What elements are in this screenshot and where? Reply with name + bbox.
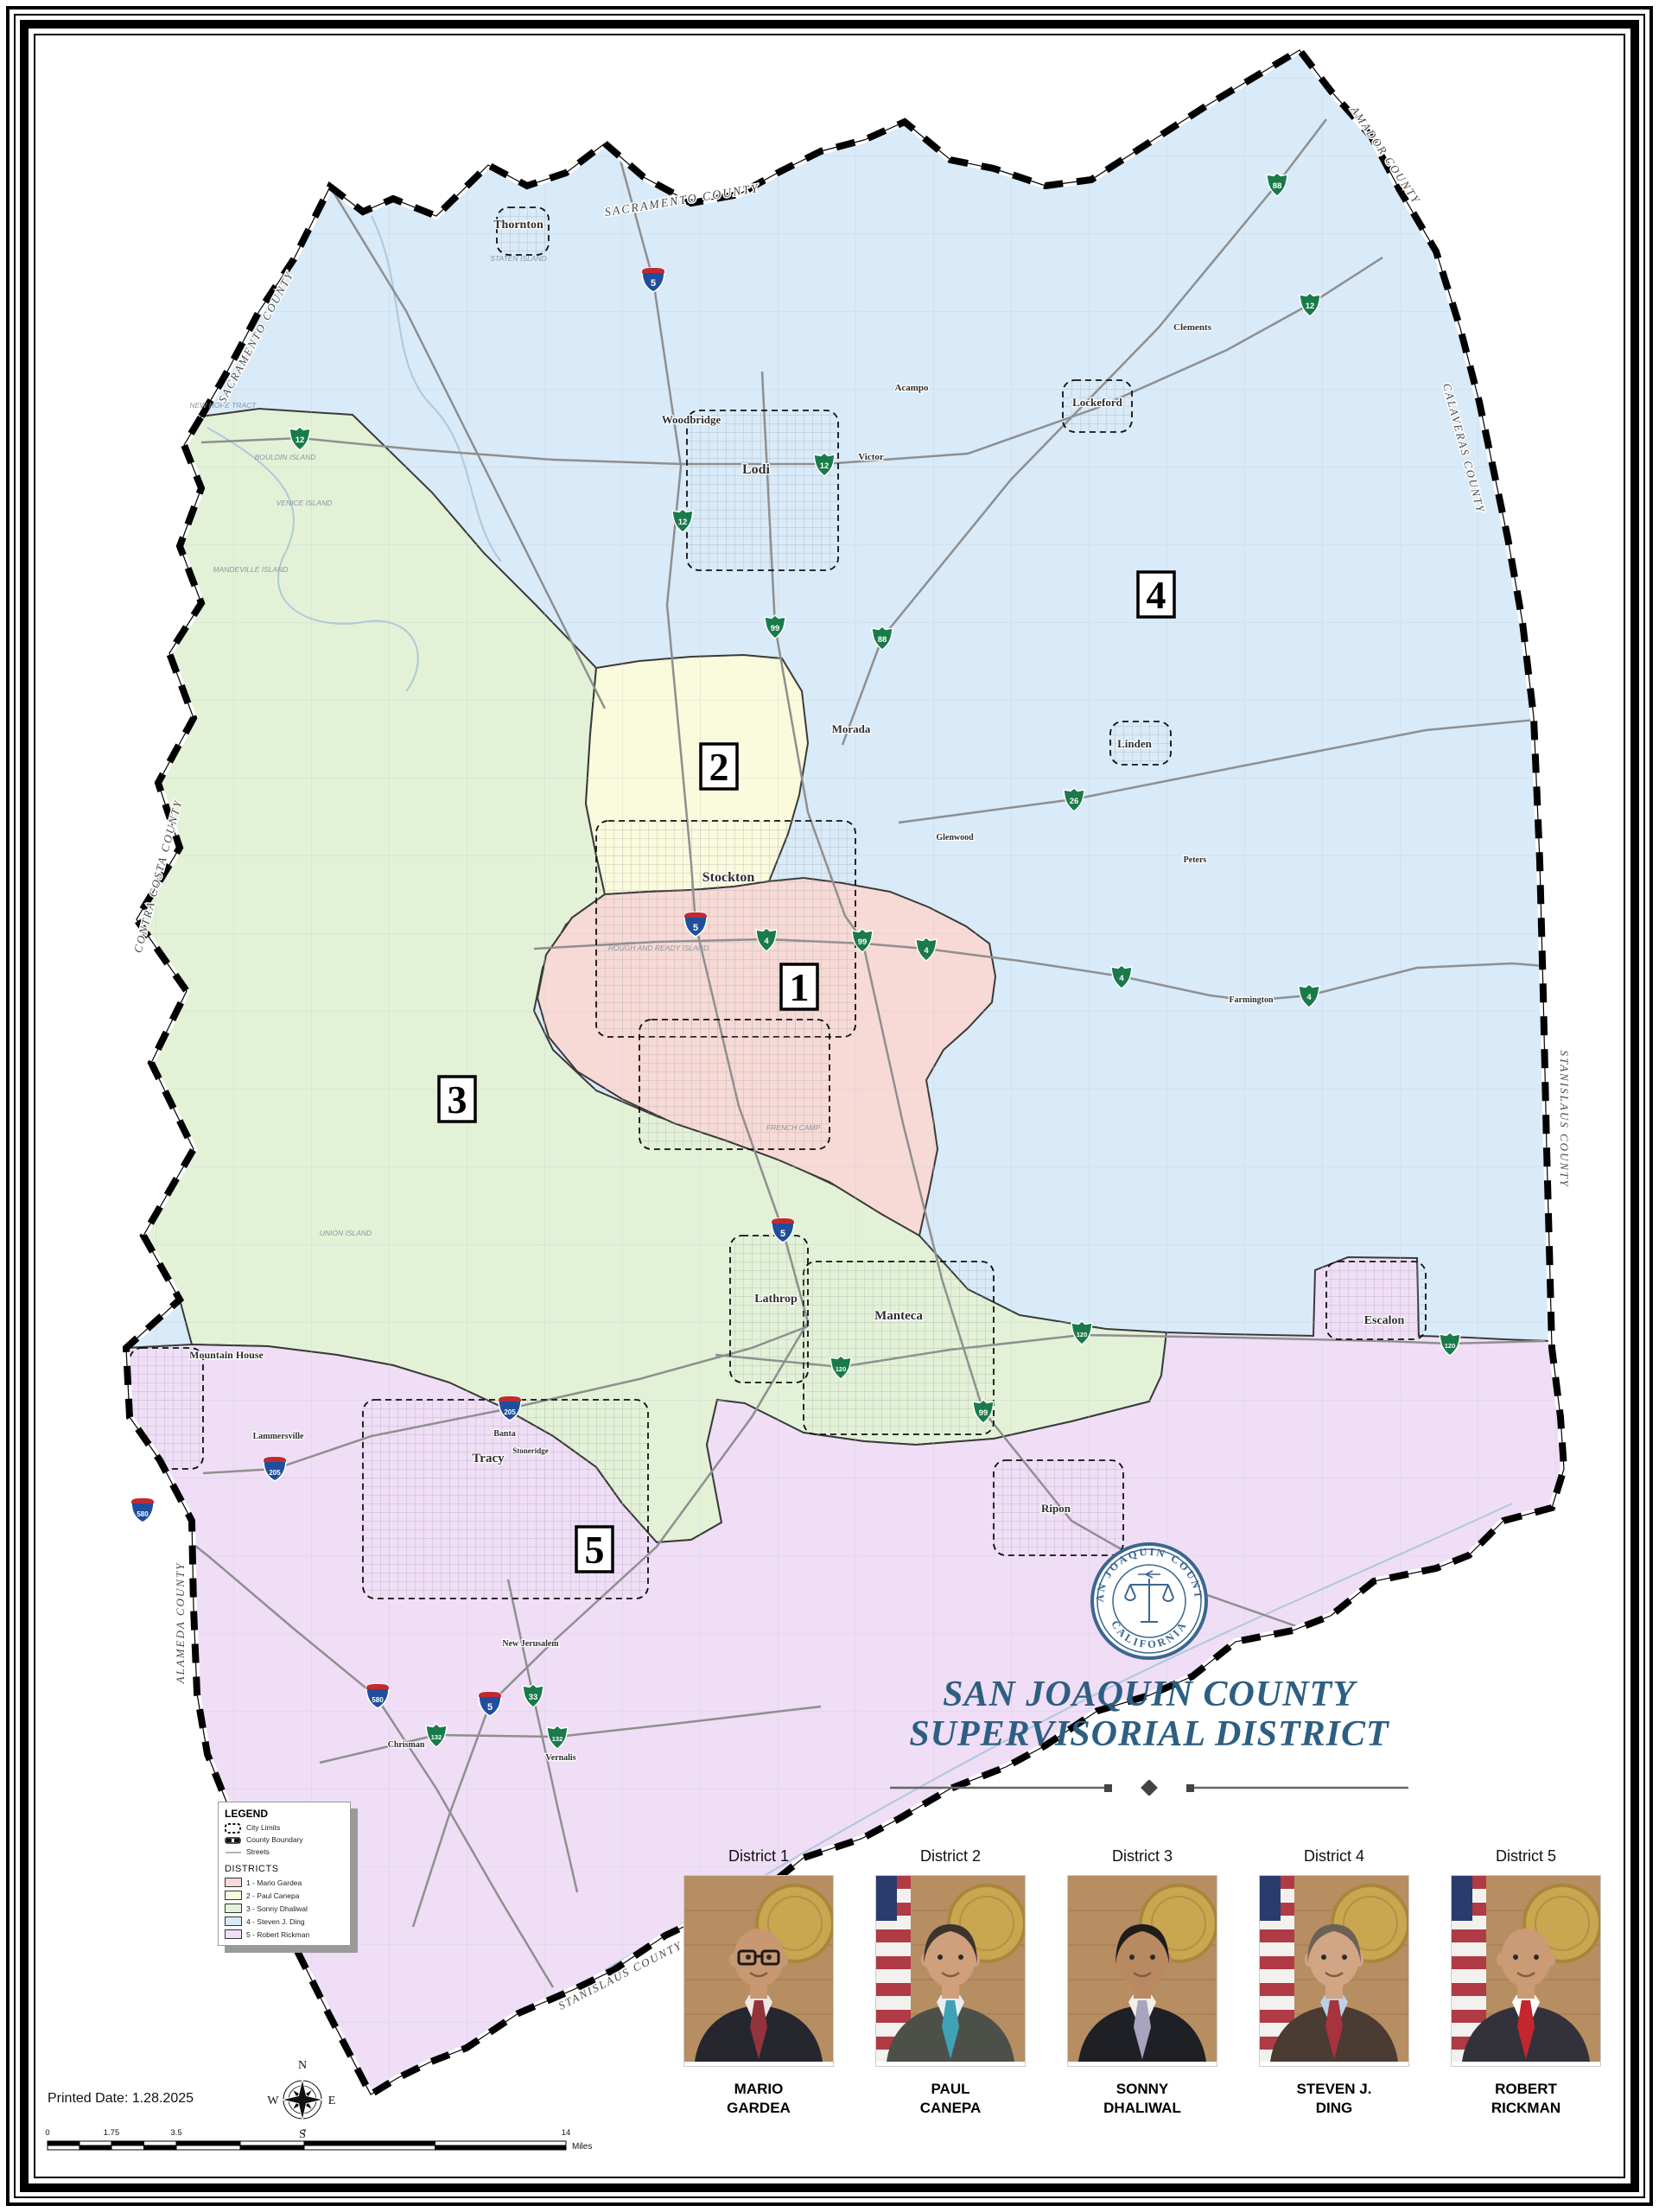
svg-text:5: 5 [487,1702,493,1713]
svg-text:2: 2 [709,745,729,789]
city-label: Linden [1117,737,1153,750]
legend-item-label: City Limits [246,1823,280,1832]
county-label: STANISLAUS COUNTY [1558,1050,1571,1187]
district-number-marker: 5 [576,1527,613,1572]
svg-text:99: 99 [771,624,780,633]
legend: LEGEND City Limits County Boundary Stree… [218,1802,351,1946]
legend-districts-title: DISTRICTS [225,1864,344,1874]
printed-date: Printed Date: 1.28.2025 [48,2091,194,2107]
district-label: District 4 [1238,1847,1430,1866]
county-seal: SAN JOAQUIN COUNTY CALIFORNIA [1088,1540,1211,1662]
svg-text:1: 1 [790,965,810,1009]
city-label: Glenwood [936,833,974,842]
city-label: Vernalis [545,1753,575,1763]
supervisor-name: ROBERTRICKMAN [1430,2080,1622,2118]
district-color-swatch [225,1929,242,1939]
district-color-swatch [225,1916,242,1926]
compass-rose: N E S W [259,2055,346,2148]
page-title-line2: SUPERVISORIAL DISTRICT [881,1714,1417,1754]
district-label: District 1 [663,1847,855,1866]
city-label: Woodbridge [662,413,721,426]
district-number-marker: 2 [701,744,737,789]
svg-text:132: 132 [552,1735,563,1743]
legend-district-label: 4 - Steven J. Ding [246,1917,305,1926]
svg-text:205: 205 [504,1408,516,1416]
district-color-swatch [225,1891,242,1900]
map-poster: NEW HOPE TRACTSTATEN ISLANDBOULDIN ISLAN… [0,0,1659,2212]
city-label: Farmington [1229,995,1274,1005]
city-label: Lodi [742,462,771,477]
supervisor-portrait [876,1876,1025,2066]
legend-district-row: 1 - Mario Gardea [225,1878,344,1887]
district-label: District 2 [855,1847,1046,1866]
city-street-grid [687,410,838,570]
city-street-grid [730,1236,808,1382]
small-map-label: MANDEVILLE ISLAND [213,565,289,574]
district-number-marker: 4 [1138,572,1174,617]
scale-unit-label: Miles [572,2142,592,2152]
small-map-label: STATEN ISLAND [490,254,546,263]
svg-text:4: 4 [1306,993,1312,1002]
legend-item: Streets [225,1847,344,1856]
compass-star [282,2079,323,2120]
city-label: Lockeford [1072,396,1123,409]
compass-e: E [328,2094,336,2107]
small-map-label: VENICE ISLAND [276,499,333,507]
svg-text:4: 4 [1119,974,1124,983]
city-label: Stoneridge [512,1446,549,1455]
city-label: Acampo [894,383,929,393]
city-label: Escalon [1364,1314,1405,1327]
small-map-label: ROUGH AND READY ISLAND [608,944,709,952]
city-street-grid [1326,1262,1426,1339]
supervisor-portrait [1260,1876,1408,2066]
legend-district-label: 2 - Paul Canepa [246,1891,299,1900]
title-divider [890,1780,1408,1796]
city-label: New Jerusalem [502,1639,559,1649]
legend-item: City Limits [225,1823,344,1832]
page-title-line1: SAN JOAQUIN COUNTY [881,1675,1417,1714]
legend-district-label: 1 - Mario Gardea [246,1878,302,1887]
legend-district-label: 3 - Sonny Dhaliwal [246,1904,308,1913]
city-label: Lathrop [754,1293,798,1306]
district-number-marker: 1 [781,964,817,1009]
svg-text:5: 5 [780,1229,785,1239]
svg-text:4: 4 [924,946,929,956]
supervisor-portrait [684,1876,833,2066]
svg-text:5: 5 [693,923,698,933]
small-map-label: FRENCH CAMP [766,1123,821,1132]
legend-district-row: 5 - Robert Rickman [225,1929,344,1939]
legend-district-row: 3 - Sonny Dhaliwal [225,1904,344,1913]
city-label: Clements [1173,322,1212,333]
svg-text:205: 205 [269,1469,281,1477]
supervisor-name: MARIOGARDEA [663,2080,855,2118]
city-label: Peters [1184,855,1207,865]
supervisor-cell: District 2 PAULCANEPA [855,1847,1046,2118]
city-label: Stockton [702,870,755,885]
svg-text:4: 4 [764,937,769,946]
supervisor-name: PAULCANEPA [855,2080,1046,2118]
supervisor-portrait [1068,1876,1217,2066]
city-label: Victor [858,452,884,462]
compass-w: W [267,2094,279,2107]
svg-text:120: 120 [1445,1342,1456,1350]
title-block: SAN JOAQUIN COUNTY CALIFORNIA SAN JOAQUI… [881,1540,1417,1800]
supervisor-cell: District 3 SONNYDHALIWAL [1046,1847,1238,2118]
city-label: Chrisman [388,1740,425,1750]
district-number-marker: 3 [439,1077,475,1122]
city-street-grid [804,1262,994,1434]
legend-district-row: 2 - Paul Canepa [225,1891,344,1900]
svg-text:12: 12 [296,435,305,445]
supervisor-cell: District 4 STEVEN J.DING [1238,1847,1430,2118]
city-label: Banta [493,1429,516,1439]
city-label: Thornton [493,219,543,232]
city-limits-icon [225,1823,242,1832]
streets-icon [225,1847,242,1856]
city-label: Tracy [472,1452,505,1465]
county-label: ALAMEDA COUNTY [174,1562,187,1685]
legend-item: County Boundary [225,1835,344,1844]
district-color-swatch [225,1878,242,1887]
legend-district-row: 4 - Steven J. Ding [225,1916,344,1926]
scale-tick-label: 0 [45,2128,49,2138]
city-label: Lammersville [253,1432,304,1441]
svg-text:33: 33 [529,1693,538,1702]
svg-text:12: 12 [678,518,688,527]
svg-text:88: 88 [878,635,887,645]
legend-title: LEGEND [225,1808,344,1820]
city-label: Mountain House [189,1349,264,1361]
legend-item-label: County Boundary [246,1835,303,1844]
small-map-label: UNION ISLAND [320,1229,372,1237]
supervisor-name: STEVEN J.DING [1238,2080,1430,2118]
svg-text:580: 580 [372,1696,384,1704]
svg-text:99: 99 [979,1408,988,1418]
supervisor-row: District 1 MARIOGARDEA District 2 [663,1847,1622,2118]
svg-text:580: 580 [137,1510,149,1518]
svg-text:120: 120 [836,1365,847,1373]
legend-district-label: 5 - Robert Rickman [246,1930,309,1939]
scale-tick-label: 1.75 [104,2128,120,2138]
county-boundary-icon [225,1835,242,1844]
city-street-grid [130,1348,203,1469]
city-label: Ripon [1041,1502,1071,1515]
svg-text:12: 12 [1306,302,1315,311]
svg-text:5: 5 [651,278,656,289]
small-map-label: BOULDIN ISLAND [255,453,316,461]
svg-text:3: 3 [448,1077,467,1122]
compass-n: N [298,2059,307,2072]
city-label: Manteca [874,1309,923,1323]
supervisor-cell: District 1 MARIOGARDEA [663,1847,855,2118]
svg-text:99: 99 [858,938,868,947]
scale-tick-label: 14 [562,2128,571,2138]
svg-text:5: 5 [585,1528,605,1572]
svg-text:12: 12 [820,461,829,471]
scale-tick-label: 3.5 [170,2128,181,2138]
district-label: District 3 [1046,1847,1238,1866]
legend-item-label: Streets [246,1847,270,1856]
svg-text:26: 26 [1070,797,1079,806]
district-color-swatch [225,1904,242,1913]
compass-s: S [299,2128,306,2141]
supervisor-cell: District 5 ROBERTRICKMAN [1430,1847,1622,2118]
city-label: Morada [832,722,871,735]
svg-text:4: 4 [1147,573,1166,617]
district-label: District 5 [1430,1847,1622,1866]
interstate-shield: 580 [131,1498,154,1522]
supervisor-name: SONNYDHALIWAL [1046,2080,1238,2118]
supervisor-portrait [1452,1876,1600,2066]
svg-text:120: 120 [1077,1331,1088,1338]
svg-text:88: 88 [1273,181,1282,191]
svg-text:132: 132 [431,1733,442,1741]
